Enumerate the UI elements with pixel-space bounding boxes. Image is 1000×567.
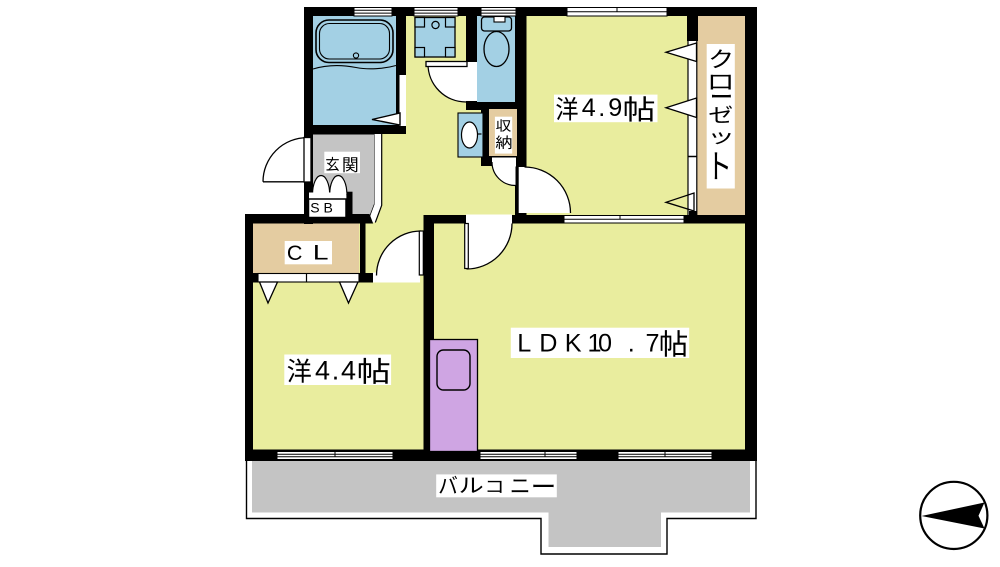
- svg-text:7: 7: [646, 330, 660, 358]
- svg-text:4: 4: [582, 94, 596, 122]
- svg-text:4: 4: [341, 356, 356, 386]
- svg-text:.: .: [332, 356, 340, 386]
- svg-text:B: B: [324, 199, 333, 215]
- svg-text:.: .: [628, 330, 635, 358]
- svg-text:9: 9: [608, 94, 622, 122]
- svg-text:L: L: [517, 330, 531, 358]
- svg-text:0: 0: [598, 330, 612, 358]
- svg-text:S: S: [310, 199, 319, 215]
- svg-text:D: D: [539, 330, 557, 358]
- svg-text:L: L: [313, 241, 329, 265]
- svg-text:.: .: [598, 94, 605, 122]
- svg-text:C: C: [287, 241, 303, 265]
- svg-text:K: K: [565, 330, 582, 358]
- svg-text:4: 4: [315, 356, 330, 386]
